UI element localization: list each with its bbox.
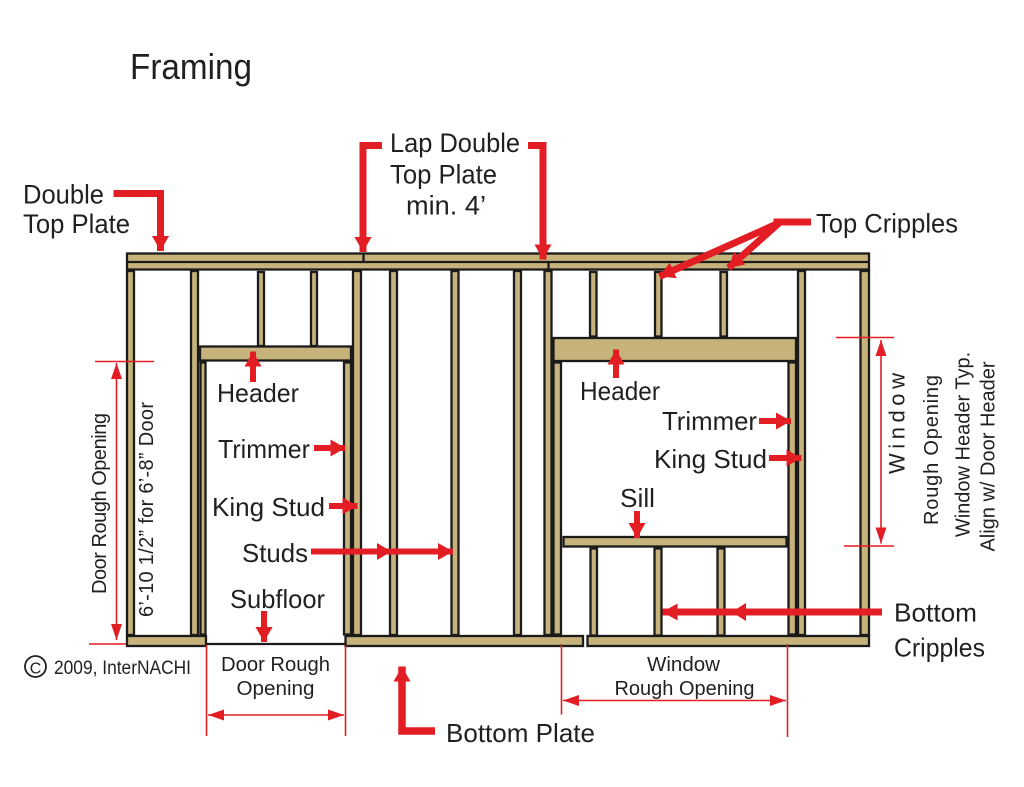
svg-text:min. 4’: min. 4’ — [406, 191, 486, 221]
svg-text:Rough Opening: Rough Opening — [921, 375, 943, 525]
svg-text:Door Rough: Door Rough — [221, 654, 330, 676]
svg-text:Top Cripples: Top Cripples — [816, 209, 958, 239]
svg-text:Sill: Sill — [620, 483, 655, 513]
svg-text:Trimmer: Trimmer — [218, 434, 310, 464]
svg-text:2009, InterNACHI: 2009, InterNACHI — [54, 658, 191, 679]
svg-text:King Stud: King Stud — [212, 492, 325, 522]
svg-text:Header: Header — [580, 376, 660, 406]
svg-text:Bottom Plate: Bottom Plate — [446, 718, 595, 748]
svg-text:King Stud: King Stud — [654, 444, 767, 474]
svg-text:Top Plate: Top Plate — [390, 160, 497, 190]
svg-text:Framing: Framing — [130, 46, 252, 87]
svg-text:Window: Window — [885, 373, 910, 474]
svg-text:C: C — [30, 661, 42, 678]
svg-text:Window: Window — [647, 654, 721, 676]
svg-text:Door Rough Opening: Door Rough Opening — [89, 413, 111, 594]
svg-text:Header: Header — [217, 378, 299, 408]
svg-text:Double: Double — [23, 180, 104, 210]
svg-text:Rough Opening: Rough Opening — [615, 678, 755, 700]
svg-text:Window Header Typ.: Window Header Typ. — [953, 352, 975, 537]
svg-text:Lap Double: Lap Double — [390, 128, 520, 158]
svg-text:Top Plate: Top Plate — [23, 209, 130, 239]
svg-text:6’-10 1/2” for 6’-8” Door: 6’-10 1/2” for 6’-8” Door — [136, 402, 158, 617]
svg-text:Trimmer: Trimmer — [662, 406, 757, 436]
svg-text:Bottom: Bottom — [894, 598, 977, 628]
svg-text:Opening: Opening — [237, 678, 315, 700]
svg-text:Cripples: Cripples — [894, 633, 985, 663]
svg-text:Studs: Studs — [242, 538, 308, 568]
svg-text:Align w/ Door Header: Align w/ Door Header — [978, 361, 1000, 551]
svg-text:Subfloor: Subfloor — [230, 584, 325, 614]
